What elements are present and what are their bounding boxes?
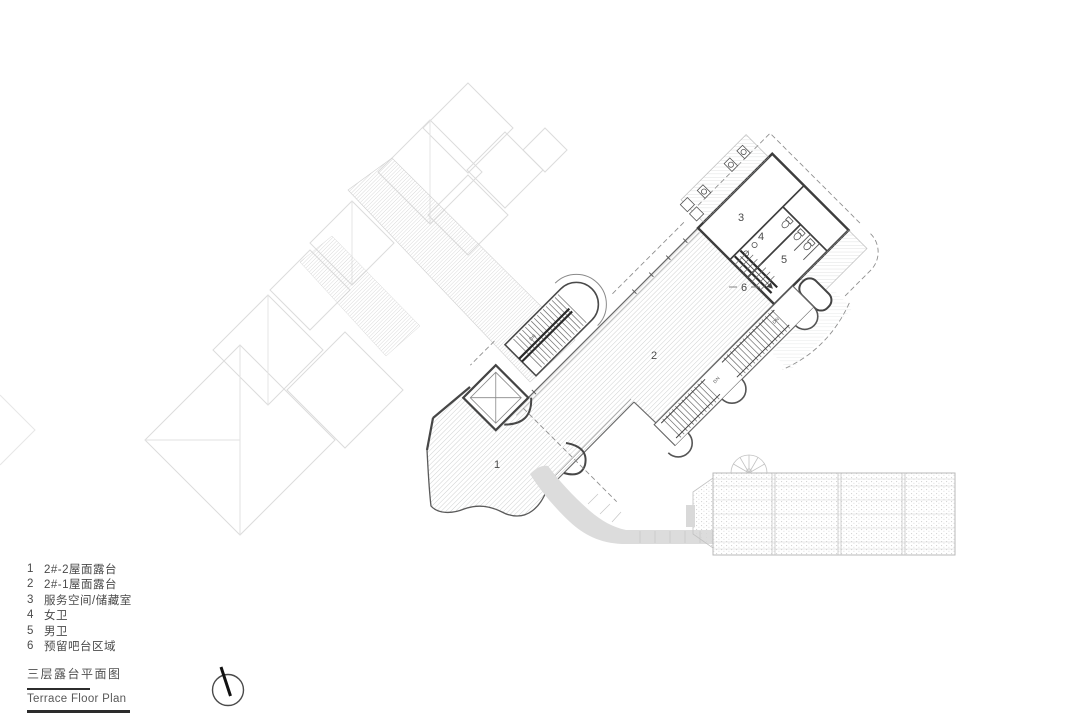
legend-item-number: 1 — [27, 563, 44, 575]
legend-item: 5 男卫 — [27, 623, 132, 639]
legend-item-label: 2#-2屋面露台 — [44, 561, 117, 577]
title-rule — [27, 710, 130, 713]
legend-item: 6 预留吧台区域 — [27, 639, 132, 655]
legend-item-label: 服务空间/储藏室 — [44, 592, 132, 608]
north-arrow — [213, 667, 244, 706]
legend-item-number: 5 — [27, 625, 44, 637]
room-label-5: 5 — [781, 254, 787, 266]
room-label-2: 2 — [651, 350, 657, 362]
legend-item-number: 2 — [27, 578, 44, 590]
annex-building — [686, 455, 955, 555]
floor-plan-page: DN DN DN — [0, 0, 1080, 722]
legend-item: 4 女卫 — [27, 608, 132, 624]
room-label-4: 4 — [758, 231, 764, 243]
room-label-3: 3 — [738, 212, 744, 224]
legend-item-number: 3 — [27, 594, 44, 606]
drawing-title-cn: 三层露台平面图 — [27, 665, 130, 682]
title-rule — [27, 688, 90, 690]
legend-item: 2 2#-1屋面露台 — [27, 577, 132, 593]
legend: 1 2#-2屋面露台 2 2#-1屋面露台 3 服务空间/储藏室 4 女卫 5 … — [27, 561, 132, 654]
room-label-6: 6 — [741, 282, 747, 294]
room-label-1: 1 — [494, 459, 500, 471]
legend-item-label: 2#-1屋面露台 — [44, 576, 117, 592]
title-block: 三层露台平面图 Terrace Floor Plan — [27, 665, 130, 713]
legend-item: 1 2#-2屋面露台 — [27, 561, 132, 577]
legend-item-label: 女卫 — [44, 607, 68, 623]
drawing-title-en: Terrace Floor Plan — [27, 693, 130, 705]
legend-item-label: 预留吧台区域 — [44, 638, 116, 654]
legend-item: 3 服务空间/储藏室 — [27, 592, 132, 608]
legend-item-number: 6 — [27, 640, 44, 652]
floor-plan-drawing: DN DN DN — [0, 0, 1080, 722]
legend-item-label: 男卫 — [44, 623, 68, 639]
legend-item-number: 4 — [27, 609, 44, 621]
annex-entry — [686, 505, 695, 527]
fan-stair — [731, 455, 767, 473]
